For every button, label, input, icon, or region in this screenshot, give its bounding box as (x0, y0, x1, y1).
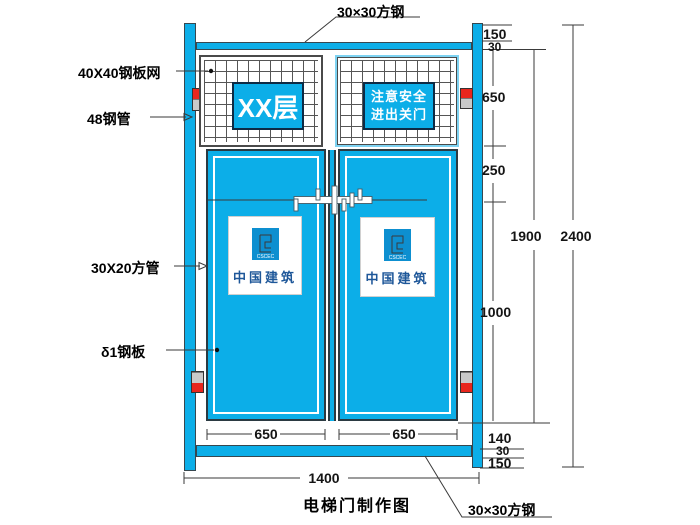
dim-left-door-width: 650 (251, 426, 281, 442)
clamp-red-part (192, 383, 203, 393)
floor-sign-text: XX层 (238, 88, 299, 125)
clamp-bottom-left (191, 371, 204, 393)
bottom-steel-label: 30×30方钢 (468, 500, 535, 520)
logo-plate-right: CSCEC 中国建筑 (360, 217, 435, 297)
overall-height-dimension-line (562, 25, 584, 467)
top-bar (196, 42, 472, 50)
dim-lower-panel: 1000 (480, 304, 511, 320)
dim-bottom-offset: 150 (488, 455, 511, 471)
cscec-emblem-icon: CSCEC (384, 229, 411, 261)
logo-plate-left: CSCEC 中国建筑 (228, 216, 302, 295)
door-width-dimension-lines (207, 429, 457, 440)
dim-overall-width: 1400 (301, 470, 347, 486)
dim-overall-height: 2400 (553, 228, 599, 244)
logo-wordmark: 中国建筑 (365, 268, 429, 287)
floor-number-sign: XX层 (232, 82, 304, 130)
steel-plate-label: δ1钢板 (101, 342, 145, 362)
cscec-emblem-icon: CSCEC (252, 228, 279, 260)
top-steel-label: 30×30方钢 (337, 2, 404, 22)
dim-frame-height: 1900 (505, 228, 547, 244)
dim-mesh-opening: 650 (482, 89, 505, 105)
dim-top-tube: 30 (488, 40, 501, 54)
mesh-label: 40X40钢板网 (78, 63, 160, 83)
clamp-gray-part (461, 98, 472, 108)
safety-sign-line2: 进出关门 (371, 106, 427, 124)
dim-upper-panel: 250 (482, 162, 505, 178)
emblem-mark-text: CSCEC (256, 254, 274, 260)
clamp-top-right (460, 88, 473, 109)
safety-sign: 注意安全 进出关门 (363, 82, 435, 130)
clamp-red-part (461, 89, 472, 98)
drawing-title: 电梯门制作图 (303, 492, 411, 516)
door-center-stile (328, 150, 336, 421)
emblem-mark-text: CSCEC (389, 255, 407, 261)
square-tube-label: 30X20方管 (91, 258, 159, 278)
dim-right-door-width: 650 (389, 426, 419, 442)
clamp-red-part (461, 383, 472, 393)
logo-wordmark: 中国建筑 (233, 267, 297, 286)
pipe-label: 48钢管 (87, 109, 131, 129)
clamp-gray-part (192, 372, 203, 383)
bottom-bar (196, 445, 472, 457)
elevator-door-drawing: XX层 注意安全 进出关门 CSCEC 中国建筑 CSCEC 中国建筑 (0, 0, 700, 525)
clamp-gray-part (461, 372, 472, 383)
clamp-bottom-right (460, 371, 473, 393)
safety-sign-line1: 注意安全 (371, 88, 427, 106)
